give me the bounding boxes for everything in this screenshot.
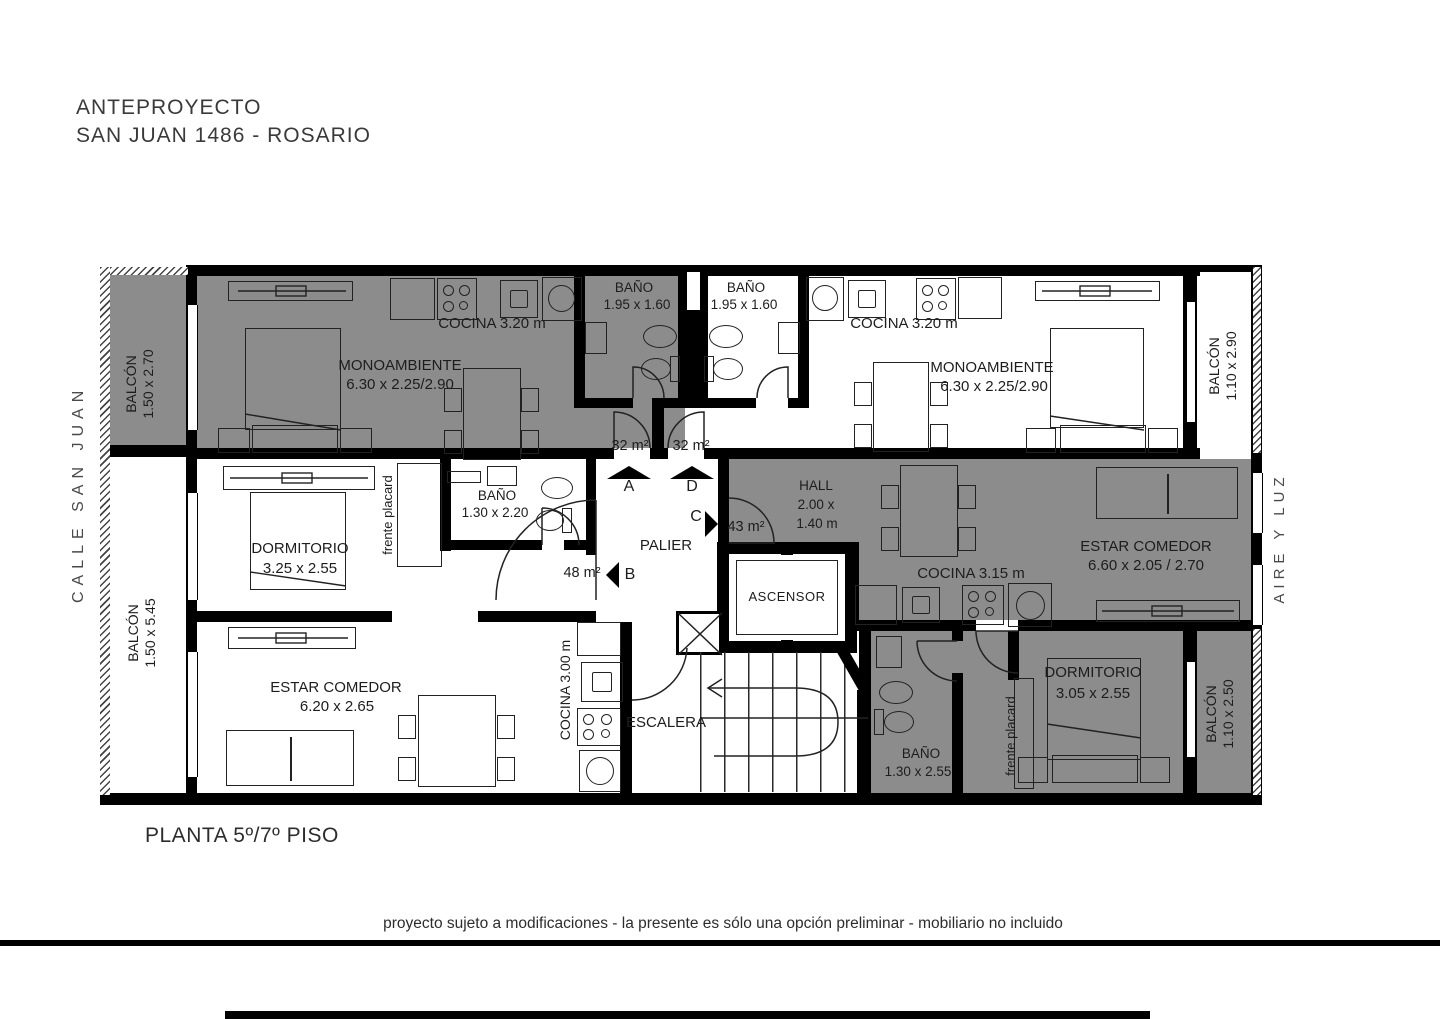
wall bbox=[708, 398, 756, 408]
placard bbox=[397, 463, 442, 567]
label-aire-y-luz: AIRE Y LUZ bbox=[1271, 468, 1291, 608]
toilet bbox=[536, 510, 564, 531]
wall bbox=[1008, 631, 1019, 680]
kitchen-sink bbox=[902, 587, 940, 623]
label-dormitorio-left: DORMITORIO bbox=[251, 540, 348, 558]
label-cocina-top-left: COCINA 3.20 m bbox=[438, 315, 546, 333]
window bbox=[187, 493, 198, 600]
floorplan-sheet: ANTEPROYECTO SAN JUAN 1486 - ROSARIO bbox=[0, 0, 1440, 1019]
kitchen-sink bbox=[581, 662, 623, 702]
unit-c-area: 43 m² bbox=[727, 518, 764, 536]
wall bbox=[564, 540, 596, 550]
elevator-door-mark bbox=[781, 640, 793, 645]
label-bano-mid-dims: 1.30 x 2.20 bbox=[462, 504, 529, 522]
washer bbox=[542, 277, 582, 321]
label-cocina-bottom-left: COCINA 3.00 m bbox=[557, 635, 575, 745]
window bbox=[1252, 473, 1263, 533]
hatch-strip bbox=[110, 267, 188, 275]
door-arc bbox=[632, 648, 687, 700]
sheet-title-line2: SAN JUAN 1486 - ROSARIO bbox=[76, 124, 371, 148]
label-escalera: ESCALERA bbox=[626, 714, 706, 732]
bed-bench bbox=[1060, 425, 1146, 453]
vanity-shelf bbox=[447, 471, 481, 483]
fridge bbox=[390, 278, 435, 320]
bidet bbox=[879, 681, 913, 704]
sofa bbox=[1096, 467, 1238, 519]
label-monoambiente-right-dims: 6.30 x 2.25/2.90 bbox=[940, 378, 1048, 396]
label-bano-mid: BAÑO bbox=[478, 487, 516, 505]
unit-a-area: 32 m² bbox=[611, 437, 648, 455]
wall bbox=[186, 611, 392, 622]
label-cocina-top-right: COCINA 3.20 m bbox=[850, 315, 958, 333]
washbasin bbox=[876, 636, 902, 668]
side-table bbox=[1148, 428, 1178, 453]
wall bbox=[478, 611, 596, 622]
disclaimer-text: proyecto sujeto a modificaciones - la pr… bbox=[383, 915, 1063, 933]
kitchen-sink bbox=[848, 280, 886, 318]
wall bbox=[952, 631, 963, 641]
stairs bbox=[700, 652, 868, 792]
label-cocina-mid-right: COCINA 3.15 m bbox=[917, 565, 1025, 583]
entry-arrow-b-icon bbox=[606, 562, 619, 588]
wall bbox=[583, 398, 633, 408]
label-dormitorio-left-dims: 3.25 x 2.55 bbox=[263, 560, 337, 578]
fridge bbox=[577, 622, 621, 656]
label-balcon-top-left: BALCÓN 1.50 x 2.70 bbox=[123, 329, 159, 439]
label-estar-right: ESTAR COMEDOR bbox=[1080, 538, 1211, 556]
chair bbox=[854, 382, 872, 406]
wall bbox=[788, 398, 809, 408]
wall bbox=[100, 445, 188, 457]
sofa bbox=[226, 730, 354, 786]
window bbox=[1186, 302, 1196, 422]
label-ascensor: ASCENSOR bbox=[749, 588, 826, 606]
label-monoambiente-left-dims: 6.30 x 2.25/2.90 bbox=[346, 376, 454, 394]
wall bbox=[620, 622, 632, 793]
label-estar-left: ESTAR COMEDOR bbox=[270, 679, 401, 697]
wall bbox=[664, 398, 678, 408]
bottom-edge-bar bbox=[225, 1011, 1150, 1019]
chair bbox=[521, 430, 539, 454]
chair bbox=[854, 424, 872, 448]
bed-bench bbox=[1052, 755, 1138, 783]
wall bbox=[100, 793, 1262, 805]
bidet bbox=[643, 325, 677, 348]
unit-a-letter: A bbox=[624, 478, 635, 496]
elevator-door-mark bbox=[781, 550, 793, 555]
label-placard-bottom: frente placard bbox=[1003, 681, 1019, 791]
chair bbox=[444, 430, 462, 454]
label-estar-left-dims: 6.20 x 2.65 bbox=[300, 698, 374, 716]
tv-cabinet bbox=[1035, 281, 1160, 301]
cooktop bbox=[577, 708, 621, 746]
label-placard-mid: frente placard bbox=[380, 460, 396, 570]
washbasin bbox=[585, 322, 607, 354]
toilet bbox=[641, 358, 671, 380]
toilet bbox=[713, 358, 743, 380]
toilet-tank bbox=[704, 356, 714, 382]
wall bbox=[440, 540, 542, 550]
label-bano-top-left: BAÑO bbox=[615, 279, 653, 297]
window bbox=[1186, 662, 1196, 757]
label-dormitorio-right: DORMITORIO bbox=[1044, 664, 1141, 682]
label-hall-dims1: 2.00 x bbox=[798, 496, 835, 514]
unit-d-letter: D bbox=[686, 478, 698, 496]
bidet bbox=[709, 325, 743, 348]
label-dormitorio-right-dims: 3.05 x 2.55 bbox=[1056, 685, 1130, 703]
cooktop bbox=[437, 278, 477, 320]
label-bano-bottom-dims: 1.30 x 2.55 bbox=[885, 763, 952, 781]
tv-cabinet bbox=[228, 281, 353, 301]
bed-bench bbox=[252, 425, 338, 453]
hatch-strip bbox=[100, 267, 110, 795]
unit-d-area: 32 m² bbox=[672, 437, 709, 455]
divider-rule bbox=[0, 940, 1440, 946]
hatch-strip bbox=[1253, 629, 1261, 795]
chair bbox=[398, 757, 416, 781]
unit-c-letter: C bbox=[690, 508, 702, 526]
bidet bbox=[541, 477, 573, 499]
side-table bbox=[340, 428, 372, 453]
oven bbox=[1008, 583, 1052, 627]
label-balcon-bottom-right: BALCÓN 1.10 x 2.50 bbox=[1203, 659, 1239, 769]
washbasin bbox=[487, 466, 517, 486]
label-palier: PALIER bbox=[640, 537, 692, 555]
tv-cabinet bbox=[228, 627, 356, 649]
side-table bbox=[218, 428, 250, 453]
label-bano-top-right: BAÑO bbox=[727, 279, 765, 297]
bed bbox=[1050, 328, 1144, 428]
wall bbox=[652, 398, 664, 459]
label-bano-top-left-dims: 1.95 x 1.60 bbox=[604, 296, 671, 314]
toilet-tank bbox=[874, 709, 884, 735]
wall bbox=[952, 673, 963, 793]
label-monoambiente-right: MONOAMBIENTE bbox=[930, 359, 1053, 377]
chair bbox=[881, 527, 899, 551]
label-hall: HALL bbox=[799, 477, 833, 495]
service-duct-box bbox=[676, 611, 722, 655]
label-balcon-top-right: BALCÓN 1.10 x 2.90 bbox=[1206, 311, 1242, 421]
floor-label: PLANTA 5º/7º PISO bbox=[145, 824, 339, 848]
label-estar-right-dims: 6.60 x 2.05 / 2.70 bbox=[1088, 557, 1204, 575]
unit-b-area: 48 m² bbox=[563, 564, 600, 582]
headboard-shelf bbox=[223, 466, 375, 490]
sheet-title-line1: ANTEPROYECTO bbox=[76, 96, 261, 120]
toilet bbox=[884, 711, 914, 733]
unit-b-letter: B bbox=[625, 566, 636, 584]
chair bbox=[497, 757, 515, 781]
chair bbox=[958, 485, 976, 509]
label-bano-top-right-dims: 1.95 x 1.60 bbox=[711, 296, 778, 314]
duct bbox=[687, 272, 700, 310]
chair bbox=[497, 715, 515, 739]
dining-table bbox=[463, 368, 521, 460]
kitchen-sink bbox=[500, 280, 538, 318]
window bbox=[1252, 565, 1263, 625]
toilet-tank bbox=[562, 508, 572, 533]
fridge bbox=[958, 277, 1002, 319]
window bbox=[187, 652, 198, 777]
label-monoambiente-left: MONOAMBIENTE bbox=[338, 357, 461, 375]
washer bbox=[579, 750, 621, 792]
door-arc bbox=[757, 367, 788, 398]
dining-table bbox=[873, 362, 929, 452]
chair bbox=[398, 715, 416, 739]
toilet-tank bbox=[670, 356, 680, 382]
side-table bbox=[1140, 757, 1170, 783]
bed bbox=[245, 328, 341, 430]
cooktop bbox=[962, 585, 1004, 625]
chair bbox=[521, 388, 539, 412]
label-calle-san-juan: CALLE SAN JUAN bbox=[70, 421, 92, 603]
wall bbox=[718, 459, 729, 553]
tv-cabinet bbox=[1096, 600, 1240, 622]
dining-table bbox=[418, 695, 496, 787]
hatch-strip bbox=[1253, 267, 1261, 453]
chair bbox=[930, 424, 948, 448]
label-hall-dims2: 1.40 m bbox=[796, 515, 837, 533]
window bbox=[187, 305, 198, 430]
washbasin bbox=[778, 322, 800, 354]
side-table bbox=[1018, 757, 1048, 783]
dining-table bbox=[900, 465, 958, 557]
label-bano-bottom: BAÑO bbox=[902, 745, 940, 763]
cooktop bbox=[916, 278, 956, 320]
chair bbox=[958, 527, 976, 551]
fridge bbox=[855, 585, 897, 625]
chair bbox=[881, 485, 899, 509]
washer bbox=[806, 277, 844, 321]
entry-arrow-c-icon bbox=[705, 511, 718, 537]
side-table bbox=[1026, 428, 1056, 453]
label-balcon-bottom-left: BALCÓN 1.50 x 5.45 bbox=[125, 573, 161, 693]
